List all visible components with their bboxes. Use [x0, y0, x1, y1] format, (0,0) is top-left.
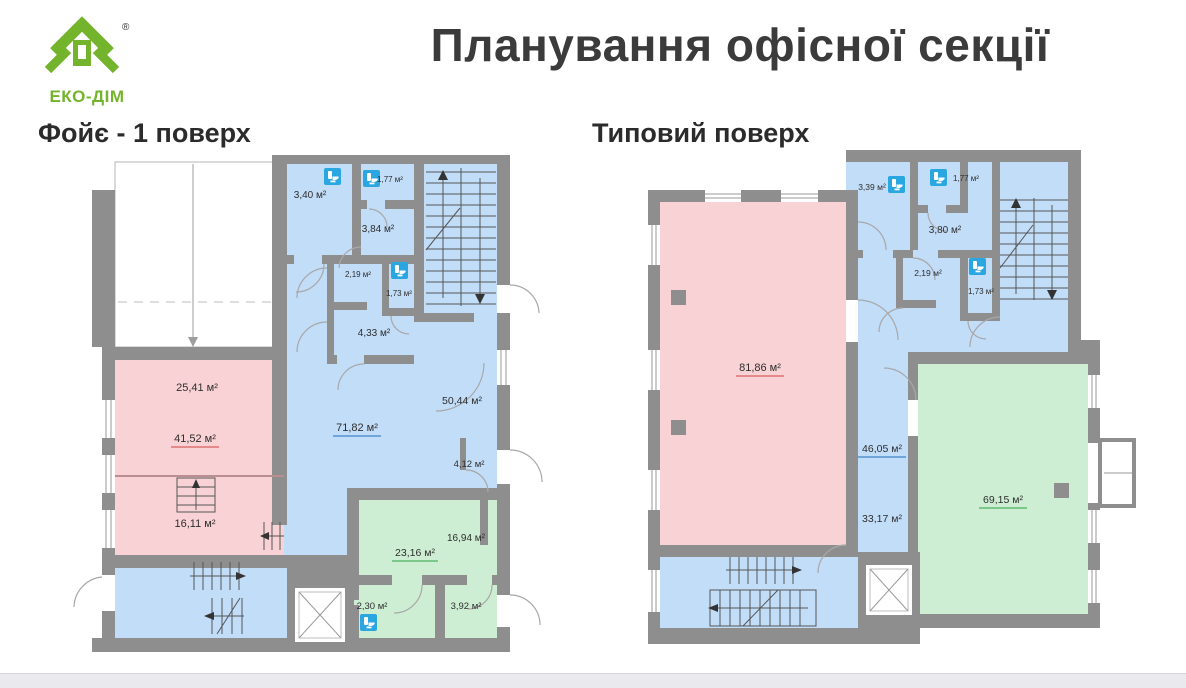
- room-area-label: 25,41 м²: [176, 382, 218, 394]
- room-area-label: 71,82 м²: [336, 422, 378, 434]
- wc-icon: [360, 614, 377, 631]
- plan-typical-title: Типовий поверх: [592, 118, 809, 149]
- room-area-label: 41,52 м²: [174, 433, 216, 445]
- room-area-label: 3,39 м²: [858, 182, 886, 192]
- wc-icon: [324, 168, 341, 185]
- room-area-label: 4,12 м²: [454, 459, 485, 470]
- balcony: [1088, 440, 1134, 506]
- wc-icon: [930, 169, 947, 186]
- plan-foyer-title: Фойє - 1 поверх: [38, 118, 251, 149]
- room-area-label: 2,19 м²: [914, 268, 942, 278]
- logo-house-icon: ®: [42, 6, 132, 84]
- room-area-label: 3,84 м²: [362, 224, 395, 235]
- room-area-label: 2,30 м²: [357, 601, 388, 612]
- room-area-label: 3,40 м²: [294, 190, 327, 201]
- open-void: [115, 162, 275, 347]
- room-area-label: 16,11 м²: [175, 518, 216, 530]
- wc-icon: [888, 176, 905, 193]
- registered-mark: ®: [122, 22, 130, 33]
- room-area-label: 2,19 м²: [345, 270, 371, 279]
- footer-bar: [0, 673, 1186, 688]
- room-area-label: 1,73 м²: [386, 289, 412, 298]
- room-area-label: 81,86 м²: [739, 362, 781, 374]
- room-area-label: 23,16 м²: [395, 547, 435, 559]
- slide: ® ЕКО-ДІМ Планування офісної секції Фойє…: [0, 0, 1186, 688]
- room-area-label: 1,73 м²: [968, 287, 994, 296]
- room-area-label: 3,80 м²: [929, 225, 962, 236]
- wc-icon: [969, 258, 986, 275]
- room-area-label: 16,94 м²: [447, 533, 486, 544]
- zone-green: [908, 352, 1100, 626]
- room-area-label: 1,77 м²: [953, 174, 979, 183]
- room-area-label: 46,05 м²: [862, 443, 902, 455]
- room-area-label: 69,15 м²: [983, 494, 1023, 506]
- room-area-label: 1,77 м²: [377, 175, 403, 184]
- elevator: [294, 587, 346, 643]
- room-area-label: 3,92 м²: [451, 601, 482, 612]
- room-area-label: 4,33 м²: [358, 328, 391, 339]
- floor-plan-typical: 3,39 м² 1,77 м² 3,80 м² 2,19 м² 1,73 м² …: [648, 150, 1140, 662]
- wc-icon: [391, 262, 408, 279]
- floor-plan-foyer: 3,40 м² 1,77 м² 3,84 м² 2,19 м² 1,73 м² …: [72, 150, 546, 662]
- room-area-label: 50,44 м²: [442, 395, 482, 407]
- logo-text: ЕКО-ДІМ: [42, 87, 132, 107]
- page-title: Планування офісної секції: [340, 18, 1140, 72]
- elevator: [865, 564, 913, 616]
- eco-dim-logo: ® ЕКО-ДІМ: [42, 6, 132, 107]
- room-area-label: 33,17 м²: [862, 513, 902, 525]
